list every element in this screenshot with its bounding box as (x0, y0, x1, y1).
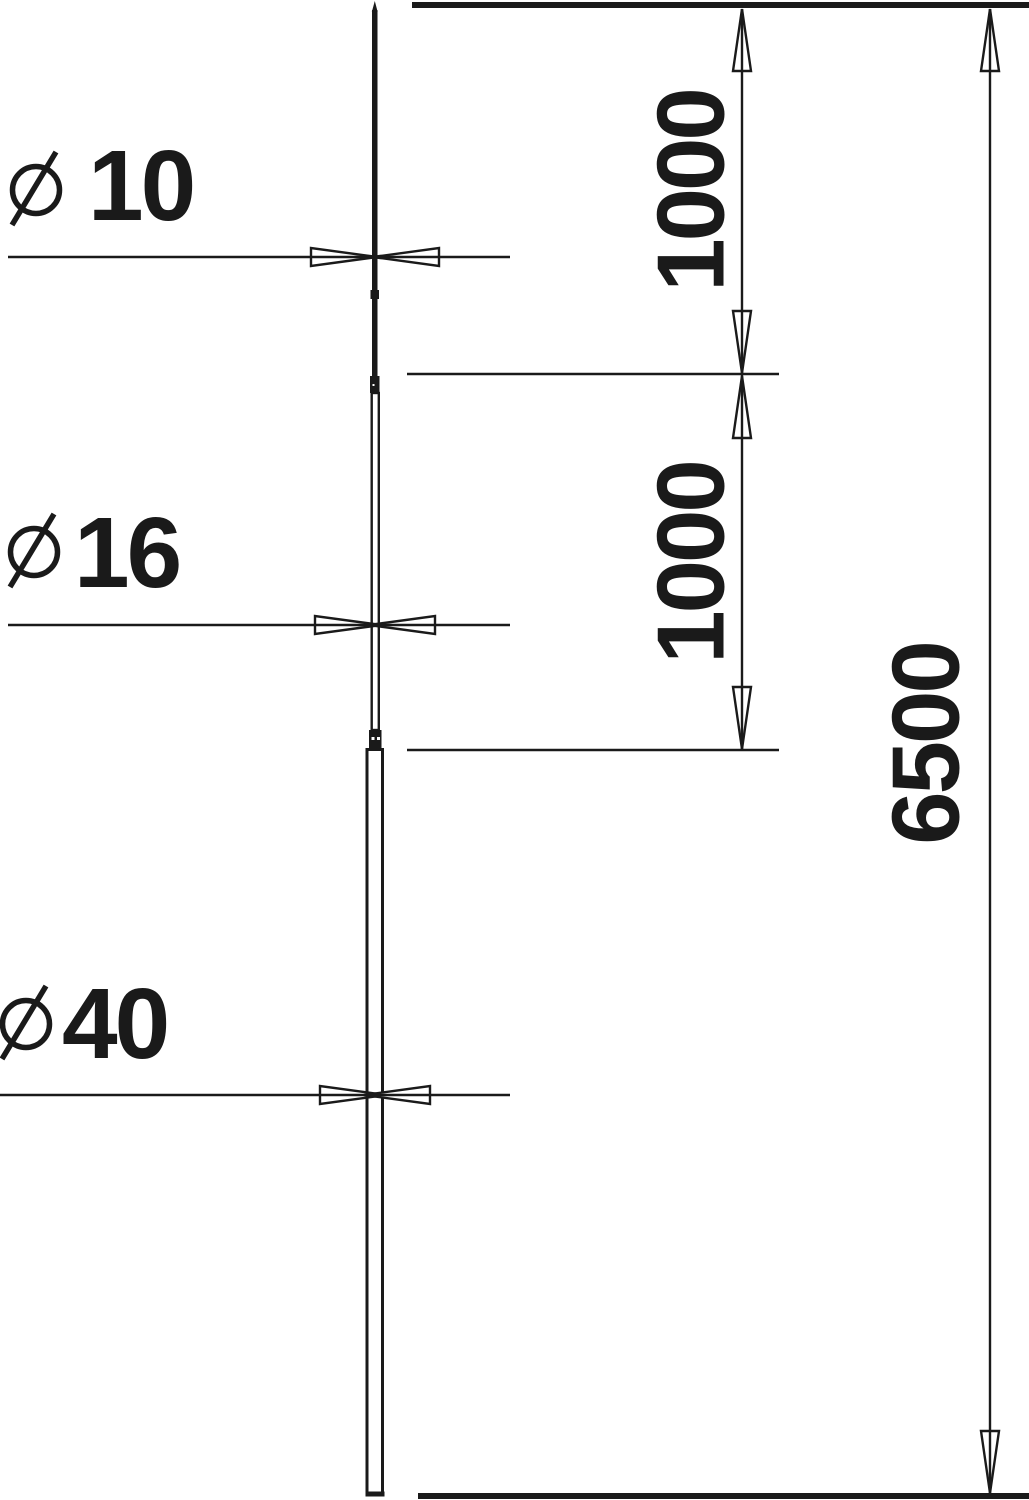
coupling-lower-notch-left (372, 737, 375, 740)
diameter-value-40: 40 (62, 968, 167, 1080)
diameter-icon (12, 152, 60, 225)
diameter-callout-40: 40 (0, 968, 510, 1104)
dimension-value-1000-middle: 1000 (638, 462, 745, 664)
dimension-1000-top: 1000 (638, 9, 751, 374)
diameter-icon (10, 514, 58, 587)
diameter-callout-10: 10 (8, 130, 510, 266)
tube-dia40-section (367, 750, 383, 1495)
air-termination-rod (366, 1, 385, 1495)
dimension-1000-middle: 1000 (638, 374, 751, 749)
dimension-6500-overall: 6500 (873, 9, 999, 1493)
coupling-upper-notch (373, 384, 375, 386)
dimension-drawing: 1000 1000 6500 10 (0, 0, 1029, 1500)
coupling-upper (370, 376, 380, 393)
rod-sleeve (371, 290, 380, 299)
diameter-value-10: 10 (88, 130, 193, 242)
coupling-lower-notch-right (377, 737, 380, 740)
rod-dia10-section (372, 10, 378, 376)
diameter-value-16: 16 (74, 497, 179, 609)
dimension-value-6500: 6500 (873, 643, 980, 845)
dimension-value-1000-top: 1000 (638, 90, 745, 292)
tube-dia16-section (372, 393, 379, 730)
technical-drawing-canvas: 1000 1000 6500 10 (0, 0, 1029, 1500)
diameter-callout-16: 16 (8, 497, 510, 634)
diameter-icon (2, 986, 50, 1059)
